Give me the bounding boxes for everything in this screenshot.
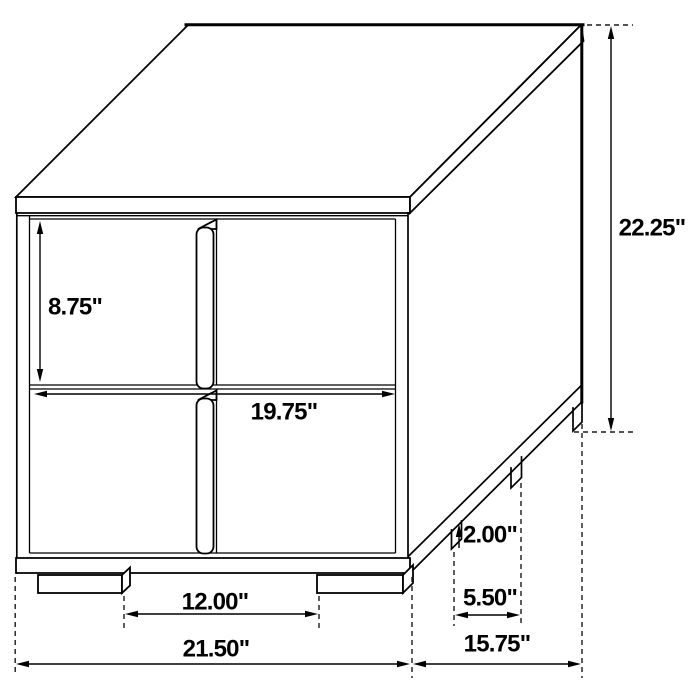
label-overall-width: 21.50" [183, 636, 250, 663]
arrow-right-drawer-width [382, 391, 395, 397]
label-leg-height: 2.00" [463, 522, 517, 549]
arrow-down-drawer-height [37, 369, 43, 382]
nightstand-dimension-diagram: 8.75" 22.25" 19.75" 12.00" 21.50" 2.00" … [0, 0, 700, 700]
arrow-right-overall-width [397, 661, 410, 667]
label-drawer-width: 19.75" [251, 399, 318, 426]
arrow-up-overall-height [608, 26, 614, 39]
upper-handle-bar [197, 228, 214, 389]
arrow-right-front-leg-spacing [305, 611, 318, 617]
upper-drawer-handle [197, 220, 217, 389]
diagram-svg: 8.75" 22.25" 19.75" 12.00" 21.50" 2.00" … [0, 0, 700, 700]
arrow-up-drawer-height [37, 221, 43, 234]
arrow-left-overall-depth [413, 661, 426, 667]
dimension-labels: 8.75" 22.25" 19.75" 12.00" 21.50" 2.00" … [48, 215, 685, 663]
label-front-leg-spacing: 12.00" [182, 589, 249, 616]
arrow-right-side-leg-spacing [507, 612, 520, 618]
arrow-left-front-leg-spacing [125, 611, 138, 617]
side-leg-middle [511, 457, 522, 488]
label-overall-depth: 15.75" [464, 631, 531, 658]
lower-handle-bar [197, 399, 214, 554]
label-overall-height: 22.25" [619, 215, 686, 242]
arrow-right-overall-depth [568, 661, 581, 667]
top-front-edge [16, 197, 410, 213]
label-drawer-height: 8.75" [48, 294, 102, 321]
arrow-left-overall-width [16, 661, 29, 667]
base-front-band [16, 558, 410, 573]
arrow-down-overall-height [608, 418, 614, 431]
arrow-left-drawer-width [34, 391, 47, 397]
arrow-left-side-leg-spacing [455, 612, 468, 618]
lower-drawer-handle [197, 391, 217, 554]
label-side-leg-spacing: 5.50" [463, 585, 517, 612]
